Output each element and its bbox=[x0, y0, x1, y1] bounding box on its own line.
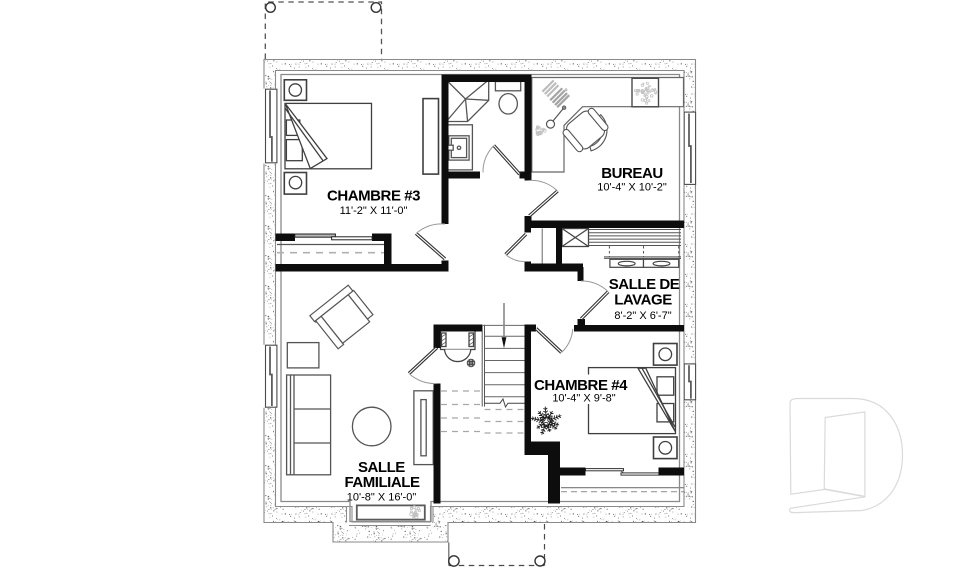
svg-text:CHAMBRE #4: CHAMBRE #4 bbox=[534, 377, 628, 394]
svg-text:LAVAGE: LAVAGE bbox=[614, 292, 672, 309]
svg-text:BUREAU: BUREAU bbox=[601, 165, 662, 182]
svg-text:10'-8" X 16'-0": 10'-8" X 16'-0" bbox=[347, 492, 417, 504]
svg-text:8'-2" X 6'-7": 8'-2" X 6'-7" bbox=[614, 310, 671, 322]
svg-text:SALLE DE: SALLE DE bbox=[609, 276, 680, 293]
svg-text:10'-4" X 9'-8": 10'-4" X 9'-8" bbox=[552, 393, 615, 405]
svg-text:10'-4" X 10'-2": 10'-4" X 10'-2" bbox=[597, 182, 667, 194]
svg-text:FAMILIALE: FAMILIALE bbox=[344, 474, 420, 491]
svg-text:CHAMBRE #3: CHAMBRE #3 bbox=[327, 188, 420, 205]
svg-text:11'-2" X 11'-0": 11'-2" X 11'-0" bbox=[340, 205, 408, 217]
